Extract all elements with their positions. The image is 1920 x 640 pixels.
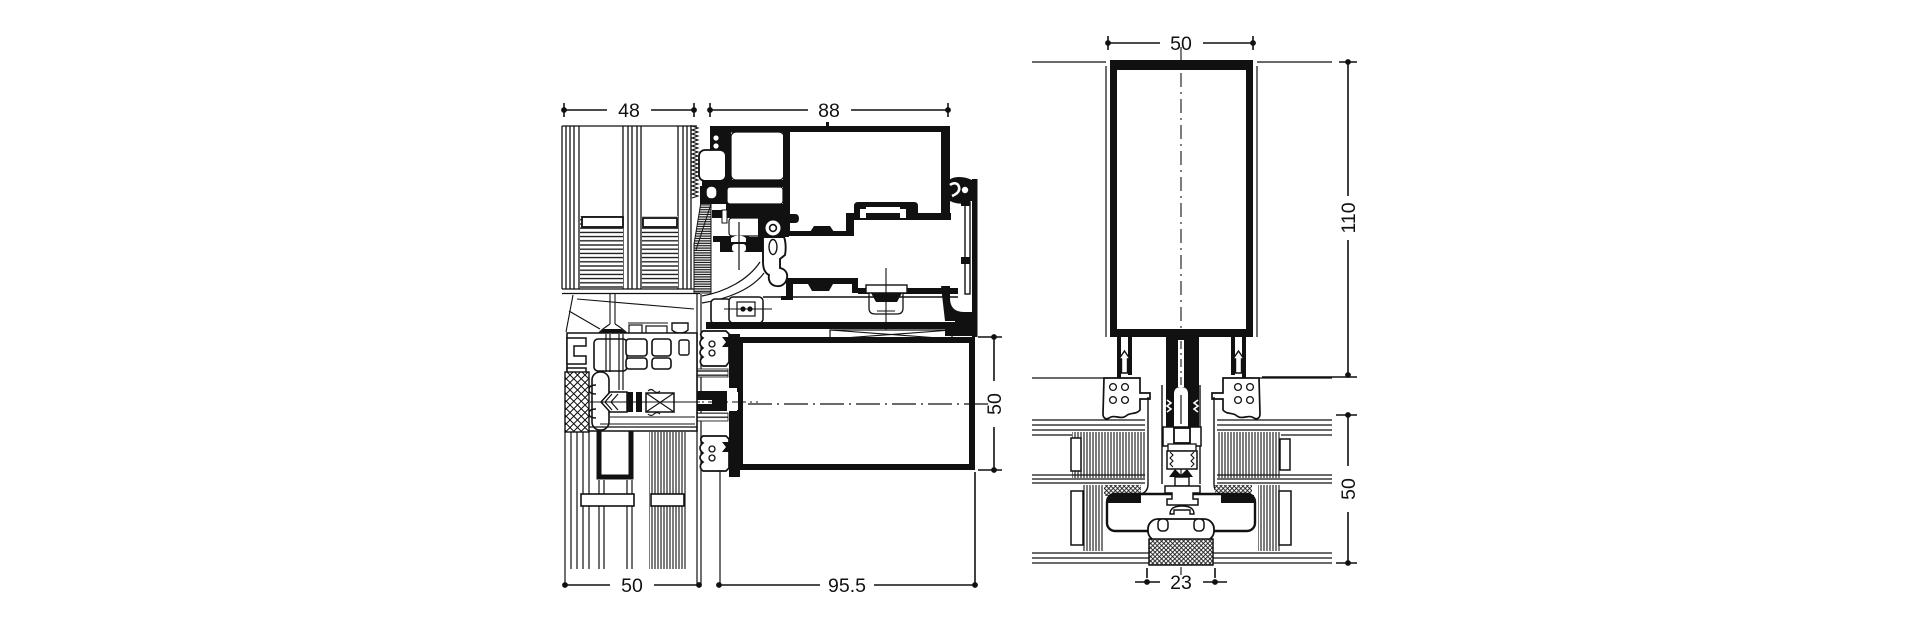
svg-text:48: 48 — [618, 100, 640, 122]
svg-text:50: 50 — [621, 575, 643, 597]
svg-text:88: 88 — [818, 100, 840, 122]
svg-text:50: 50 — [1338, 478, 1360, 500]
svg-text:23: 23 — [1170, 572, 1192, 594]
svg-text:95.5: 95.5 — [828, 575, 866, 597]
svg-text:50: 50 — [984, 393, 1006, 415]
svg-text:110: 110 — [1338, 202, 1360, 233]
